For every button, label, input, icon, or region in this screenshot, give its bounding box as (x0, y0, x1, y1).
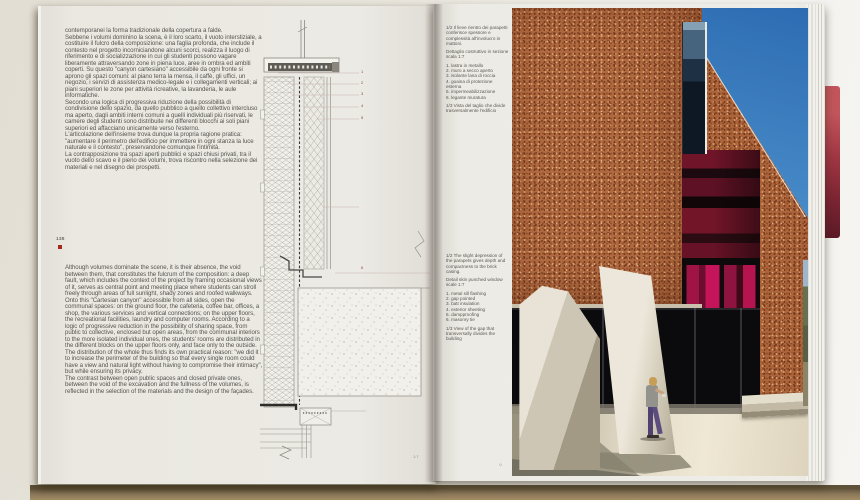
paragraph: Secondo una logica di progressiva riduzi… (65, 100, 263, 133)
caption-italian: 1/2 Il lieve rientro dei parapetti confe… (446, 25, 509, 113)
drawing-callout-3: 3 (361, 92, 363, 96)
table-surface (30, 485, 860, 500)
person-head (649, 377, 657, 386)
paragraph: L'articolazione dell'insieme trova dunqu… (65, 132, 263, 152)
window-slot (682, 22, 707, 154)
background-trees-strip (803, 260, 808, 406)
paragraph: The contrast between open public spaces … (65, 376, 263, 396)
italian-text-column: contemporanei la forma tradizionale dell… (65, 28, 263, 171)
caption-item: 6. masonry tie (446, 317, 509, 322)
caption-subtitle: Dettaglio costruttivo in sezione scala 1… (446, 49, 509, 60)
person-held-object (662, 394, 666, 397)
paragraph: La contrapposizione tra spazi aperti pub… (65, 152, 263, 172)
paragraph: Sebbene i volumi dominino la scena, è il… (65, 35, 263, 100)
drawing-callout-6: 6 (361, 266, 363, 270)
drawing-callout-5: 5 (361, 116, 363, 120)
caption-intro: 1/2 Il lieve rientro dei parapetti confe… (446, 25, 509, 46)
book-fore-edge (806, 4, 825, 481)
building-photo (512, 8, 808, 476)
caption-subtitle: Detail skin punched window scale 1:7 (446, 277, 509, 288)
paragraph: Although volumes dominate the scene, it … (65, 265, 263, 376)
english-text-column: Although volumes dominate the scene, it … (65, 265, 263, 395)
left-page: contemporanei la forma tradizionale dell… (38, 6, 436, 484)
caption-item: 6. legante muratura (446, 95, 509, 100)
section-drawing (258, 15, 438, 470)
canyon-shade (682, 150, 760, 266)
concrete-bench (742, 392, 808, 417)
caption-outro: 1/3 Vista del taglio che divide trasvers… (446, 103, 509, 114)
person-leg (652, 406, 663, 434)
drawing-scale-note: 1:7 (413, 454, 419, 459)
brick-facade-left (512, 8, 702, 310)
person (636, 377, 670, 455)
page-number-marker (58, 245, 62, 249)
page-number: 138 (56, 237, 65, 242)
photo-credit: © (499, 411, 503, 466)
drawing-callout-1: 1 (361, 70, 363, 74)
canyon-maroon-wall (682, 150, 760, 266)
drawing-callout-2: 2 (361, 81, 363, 85)
right-page: 1/2 Il lieve rientro dei parapetti confe… (433, 4, 825, 481)
person-feet (647, 435, 659, 438)
caption-intro: 1/2 The slight depression of the parapet… (446, 253, 509, 274)
caption-outro: 1/3 View of the gap that transversally d… (446, 326, 509, 342)
caption-english: 1/2 The slight depression of the parapet… (446, 253, 509, 341)
drawing-callout-4: 4 (361, 104, 363, 108)
caption-item: 4. guaina di protezione esterna (446, 79, 509, 90)
